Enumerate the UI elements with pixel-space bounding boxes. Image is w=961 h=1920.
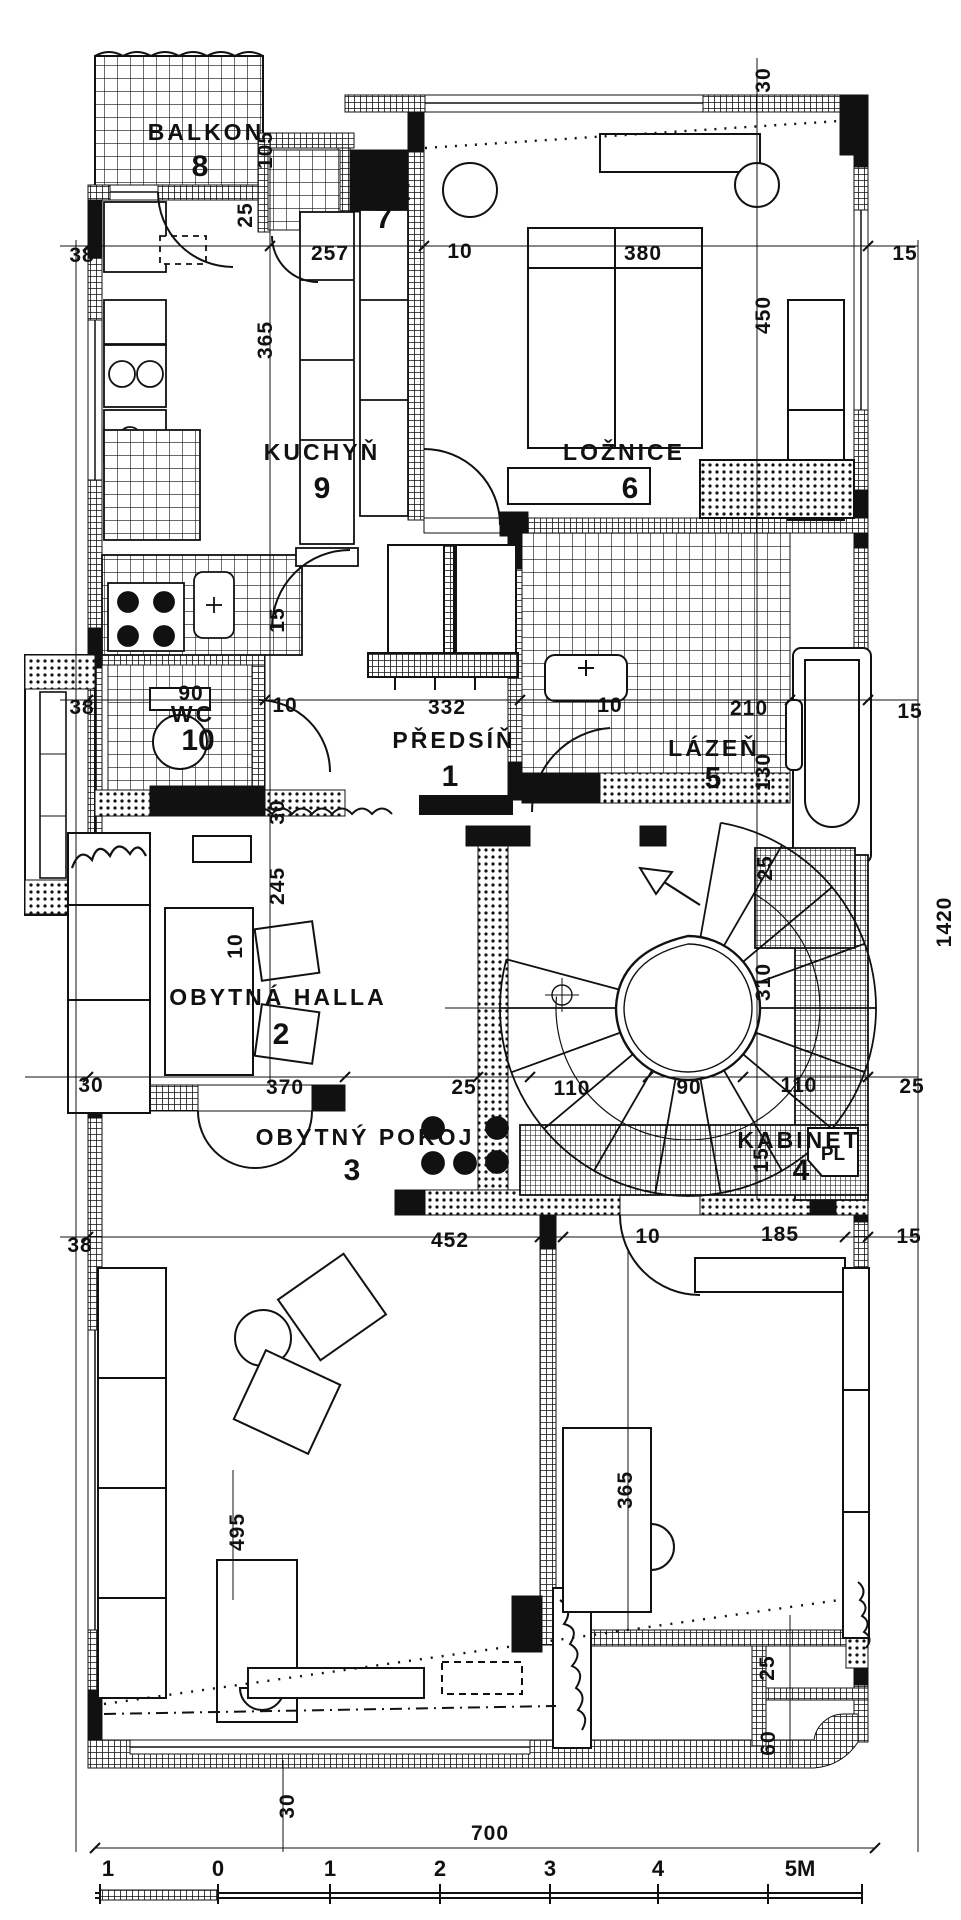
wall-subroom-divider — [766, 1688, 868, 1700]
dim-185: 185 — [761, 1223, 799, 1246]
room-label-loznice: LOŽNICE — [563, 438, 685, 465]
dim-15-lower: 15 — [896, 1225, 921, 1248]
door-bedroom — [424, 449, 500, 525]
halla-shelf — [193, 836, 251, 862]
room-number-halla: 2 — [273, 1018, 290, 1051]
scale-label-2: 2 — [434, 1856, 446, 1881]
scale-bar-hatched-segment — [100, 1890, 218, 1900]
dashed-furniture — [442, 1662, 522, 1694]
kabinet-daybed — [843, 1268, 869, 1638]
kabinet-furniture — [563, 1258, 870, 1648]
stair-newel-outer — [616, 936, 760, 1080]
wardrobe-divider — [444, 545, 454, 663]
room-number-predsin: 1 — [442, 760, 459, 793]
kabinet-shelf — [695, 1258, 845, 1292]
room-number-kuchyn: 9 — [314, 472, 331, 505]
wall-pier — [500, 512, 528, 536]
room-label-halla: OBYTNÁ HALLA — [169, 983, 386, 1010]
dim-365-kabinet: 365 — [614, 1471, 637, 1509]
dim-25-stairtop: 25 — [754, 855, 777, 880]
dim-495: 495 — [226, 1513, 249, 1551]
kabinet-chair — [651, 1524, 674, 1570]
scale-label-4: 4 — [652, 1856, 665, 1881]
dim-10-lazen: 10 — [597, 694, 622, 717]
hall-bench — [368, 653, 518, 677]
dim-130: 130 — [752, 753, 775, 791]
wall-pier — [150, 786, 265, 816]
room-label-balkon: BALKON — [148, 119, 264, 145]
halla-couch — [68, 833, 150, 1113]
bay-wall-top — [25, 655, 95, 689]
dim-25-subroom: 25 — [756, 1655, 779, 1680]
scale-label-5m: 5M — [785, 1856, 816, 1881]
dim-365-kitchen: 365 — [254, 321, 277, 359]
dim-105: 105 — [254, 131, 277, 169]
scale-label-3: 3 — [544, 1856, 556, 1881]
room-number-kabinet: 4 — [793, 1154, 810, 1187]
kitchen-cabinet — [104, 202, 166, 272]
floor-plan-sheet: BALKON 8 SPÍŽ 7 KUCHYŇ 9 LOŽNICE 6 90 WC… — [0, 0, 961, 1920]
room-label-kuchyn: KUCHYŇ — [264, 438, 380, 465]
kitchen-tiled-corner — [104, 430, 200, 540]
dim-25-stairwall: 25 — [451, 1076, 476, 1099]
wall-kitchen-bedroom — [408, 112, 424, 520]
room-number-loznice: 6 — [622, 472, 639, 505]
wall-wc-right — [252, 665, 265, 793]
scale-bar — [95, 1884, 862, 1904]
dim-15-lazen: 15 — [897, 700, 922, 723]
scale-label-1a: 1 — [102, 1856, 114, 1881]
dim-10-halla: 10 — [224, 933, 247, 958]
dim-38-lower: 38 — [67, 1234, 92, 1257]
halla-armchair — [255, 921, 320, 981]
dim-210: 210 — [730, 697, 768, 720]
scale-label-0: 0 — [212, 1856, 224, 1881]
dim-450: 450 — [752, 296, 775, 334]
room-label-pokoj: OBYTNÝ POKOJ — [256, 1123, 475, 1150]
wall-pier — [854, 112, 868, 167]
dim-90: 90 — [676, 1076, 701, 1099]
room-number-balkon: 8 — [192, 150, 209, 183]
balcony-railing — [95, 52, 263, 56]
room-number-pokoj: 3 — [344, 1154, 361, 1187]
burner — [118, 592, 138, 612]
dim-380: 380 — [624, 242, 662, 265]
dim-15-top: 15 — [892, 242, 917, 265]
dim-110-right: 110 — [781, 1074, 818, 1097]
burner — [154, 626, 174, 646]
dim-310: 310 — [752, 963, 775, 1001]
pantry-cabinet — [360, 210, 408, 516]
wall-kabinet-bottom — [556, 1630, 868, 1646]
floor-plan-drawing: BALKON 8 SPÍŽ 7 KUCHYŇ 9 LOŽNICE 6 90 WC… — [0, 0, 961, 1920]
wall-kabinet-left — [540, 1215, 556, 1645]
dim-332: 332 — [428, 696, 466, 719]
stair-direction-arrow — [640, 868, 672, 894]
low-cabinet — [248, 1668, 424, 1698]
dim-1420-total: 1420 — [933, 897, 956, 948]
dim-110-left: 110 — [554, 1077, 591, 1100]
armchair — [234, 1350, 340, 1454]
door-mat — [420, 796, 512, 814]
room-label-predsin: PŘEDSÍŇ — [392, 726, 515, 753]
dim-30-bay: 30 — [78, 1074, 103, 1097]
sink-basin — [109, 361, 135, 387]
bedroom-chair — [443, 163, 497, 217]
dim-15-mid: 15 — [266, 607, 289, 632]
dim-10-top: 10 — [447, 240, 472, 263]
halla-furniture — [68, 809, 392, 1114]
dim-370: 370 — [266, 1076, 304, 1099]
kabinet-desk — [563, 1428, 651, 1612]
burner — [154, 592, 174, 612]
kitchen-fixtures — [102, 202, 408, 655]
dim-257: 257 — [311, 242, 349, 265]
room-number-wc: 10 — [181, 724, 214, 757]
room-label-lazen: LÁZEŇ — [668, 734, 760, 761]
wall-pier — [512, 1596, 542, 1652]
dim-30-topright: 30 — [752, 67, 775, 92]
dim-245: 245 — [266, 867, 289, 905]
room-number-spiz: 7 — [376, 202, 393, 235]
wall-pier — [466, 826, 530, 846]
dim-10-wc: 10 — [272, 694, 297, 717]
wall-pier — [640, 826, 666, 846]
dim-38-top: 38 — [69, 244, 94, 267]
dim-30-wall: 30 — [266, 799, 289, 824]
dim-452: 452 — [431, 1229, 469, 1252]
label-pl: PL — [821, 1144, 846, 1165]
door-halla-left — [198, 1111, 255, 1168]
dim-25-balkon: 25 — [234, 202, 257, 227]
room-number-lazen: 5 — [705, 762, 722, 795]
hall-wardrobe — [388, 545, 450, 653]
scale-label-1b: 1 — [324, 1856, 336, 1881]
dim-30-bottom: 30 — [276, 1793, 299, 1818]
dim-60: 60 — [757, 1730, 780, 1755]
stair-direction-line — [664, 882, 700, 905]
dim-10-kabinet: 10 — [635, 1225, 660, 1248]
pokoj-sofa — [98, 1268, 166, 1698]
hall-wardrobe — [456, 545, 516, 653]
dim-15-stairbottom: 15 — [750, 1147, 773, 1172]
room-label-spiz: SPÍŽ — [350, 178, 413, 205]
bay-bookshelf — [40, 692, 66, 878]
bath-step — [786, 700, 802, 770]
bathtub-inner — [805, 660, 859, 827]
burner — [118, 626, 138, 646]
armchair — [278, 1254, 386, 1361]
kitchen-counter — [104, 300, 166, 344]
axis-dashdot — [104, 1706, 556, 1714]
sink-basin — [137, 361, 163, 387]
bedroom-shelf — [600, 134, 760, 172]
bedroom-tiled-nook — [700, 460, 854, 518]
dim-25-right: 25 — [899, 1075, 924, 1098]
dim-38-mid: 38 — [69, 696, 94, 719]
dim-700-total: 700 — [471, 1822, 509, 1845]
